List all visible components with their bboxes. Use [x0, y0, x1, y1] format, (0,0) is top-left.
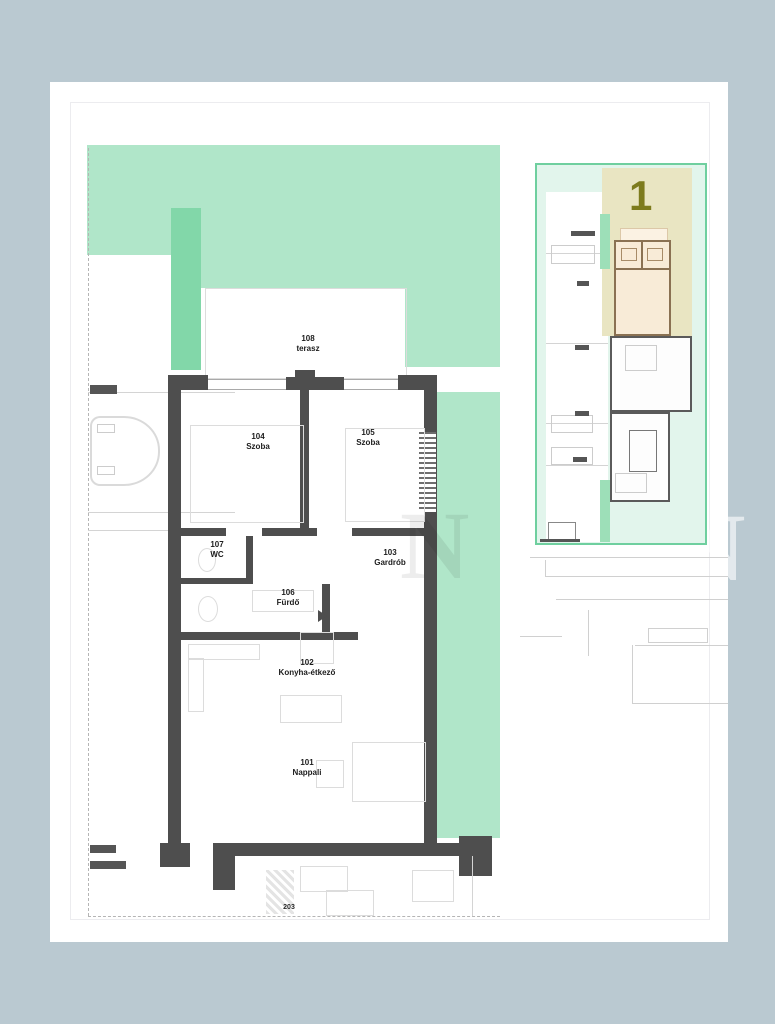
street-line — [632, 645, 633, 703]
garden-area-mid — [200, 255, 405, 288]
site-unit-divider — [546, 465, 608, 466]
site-wall-mark — [575, 411, 589, 416]
room-label-furdo: 106 Fürdő — [277, 588, 300, 609]
wall-hall-3 — [352, 528, 425, 536]
car-wheel-icon — [97, 424, 115, 433]
site-wall-mark — [571, 231, 595, 236]
street-line — [556, 599, 728, 600]
street-parking-box — [648, 628, 708, 643]
wall-wc-right — [246, 536, 253, 582]
room-label-gardrob: 103 Gardrób — [374, 548, 406, 569]
room-name: Szoba — [246, 442, 270, 452]
neighbor-step — [326, 890, 374, 916]
wall-left-end-block — [160, 843, 190, 867]
mini-unit-2-room — [625, 345, 657, 371]
street-line — [635, 645, 728, 646]
room-name: Nappali — [293, 768, 322, 778]
unit-number-badge: 1 — [629, 175, 652, 217]
street-line — [545, 576, 728, 577]
site-balcony — [551, 447, 593, 465]
mini-room-mark — [621, 248, 637, 261]
room-label-wc: 107 WC — [210, 540, 223, 561]
street-line — [530, 557, 728, 558]
room-label-terasz: 108 terasz — [296, 334, 319, 355]
street-line — [588, 610, 589, 656]
room-label-konyha: 102 Konyha-étkező — [279, 658, 336, 679]
room-name: Gardrób — [374, 558, 406, 568]
wall-bottom-right-block — [459, 836, 492, 876]
room-number: 107 — [210, 540, 223, 550]
wall-bottom-left-block — [213, 843, 235, 890]
plot-boundary-bottom — [88, 916, 500, 918]
parking-line-lower — [88, 530, 168, 531]
mini-unit-3-room — [615, 473, 647, 493]
wall-stub-outer — [90, 845, 116, 853]
car-wheel-icon — [97, 466, 115, 475]
room-number: 105 — [356, 428, 380, 438]
site-balcony — [551, 415, 593, 433]
room-number: 103 — [374, 548, 406, 558]
terrace-door-jamb — [295, 370, 315, 390]
site-path-stripe — [600, 480, 610, 542]
wall-stub-outer — [90, 861, 126, 869]
wall-wc-bottom — [181, 578, 253, 584]
site-path-stripe — [600, 214, 610, 269]
sink-fixture — [198, 596, 218, 622]
mini-unit-wall — [641, 242, 643, 270]
room-name: WC — [210, 550, 223, 560]
boundary-line-right — [472, 856, 473, 916]
wall-hall-2 — [262, 528, 317, 536]
street-line — [632, 703, 728, 704]
room-label-nappali: 101 Nappali — [293, 758, 322, 779]
kitchen-counter — [188, 658, 204, 712]
room-name: Szoba — [356, 438, 380, 448]
site-balcony — [551, 245, 595, 264]
garden-white-notch — [443, 367, 500, 392]
window-top-left — [208, 379, 286, 390]
mini-room-mark — [647, 248, 663, 261]
room-name: Fürdő — [277, 598, 300, 608]
floor-plan-screenshot: 108 terasz 104 Szoba 105 Szoba 107 WC 10… — [0, 0, 775, 1024]
wall-hall-1 — [181, 528, 226, 536]
site-wall-mark — [575, 345, 589, 350]
room-name: terasz — [296, 344, 319, 354]
door-arrow-icon — [318, 610, 327, 622]
site-plan: 1 — [535, 163, 707, 545]
room-number: 102 — [279, 658, 336, 668]
garden-area-right-strip — [437, 392, 500, 838]
room-number: 101 — [293, 758, 322, 768]
wall-left — [168, 390, 181, 855]
wall-top-right — [398, 375, 437, 390]
site-wall-mark — [540, 539, 580, 542]
street-line — [545, 560, 546, 577]
room-name: Konyha-étkező — [279, 668, 336, 678]
site-wall-mark — [577, 281, 589, 286]
street-line — [520, 636, 562, 637]
garden-area-right-upper — [405, 255, 500, 367]
room-label-szoba-104: 104 Szoba — [246, 432, 270, 453]
garden-area-top — [87, 145, 500, 255]
wall-top-left — [168, 375, 208, 390]
room-number: 108 — [296, 334, 319, 344]
room-number: 104 — [246, 432, 270, 442]
window-top-right — [344, 379, 398, 390]
room-label-szoba-105: 105 Szoba — [356, 428, 380, 449]
kitchen-island — [280, 695, 342, 723]
wall-bottom — [228, 843, 460, 856]
room-label-203: 203 — [283, 904, 295, 911]
mini-unit-3-room — [629, 430, 657, 472]
site-unit-divider — [546, 343, 608, 344]
wall-fragment-left — [90, 385, 117, 394]
site-wall-mark — [573, 457, 587, 462]
room-number: 106 — [277, 588, 300, 598]
sofa-furniture — [352, 742, 426, 802]
garden-path-stripe — [171, 208, 201, 370]
plot-boundary-left — [88, 148, 90, 916]
neighbor-step — [300, 866, 348, 892]
neighbor-step — [412, 870, 454, 902]
